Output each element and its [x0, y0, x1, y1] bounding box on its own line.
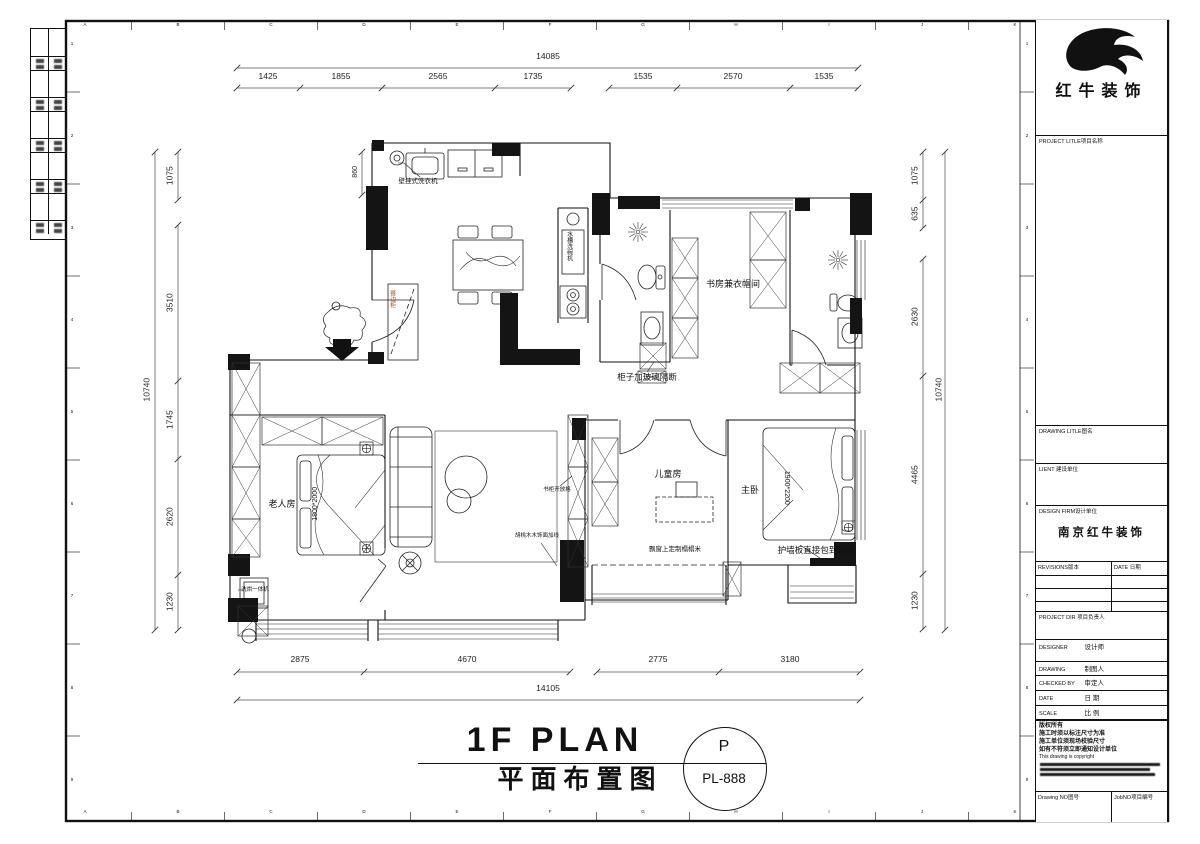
room-label-child: 儿童房 — [650, 470, 686, 480]
checked-by-label-cn: 审定人 — [1085, 680, 1105, 687]
dim-label: 1425 — [244, 72, 292, 81]
dim-left-total: 10740 — [142, 368, 151, 412]
dim-label: 2875 — [276, 655, 324, 664]
grid-letter: C — [265, 23, 277, 28]
grid-letter: J — [916, 810, 928, 815]
checked-by-label-en: CHECKED BY — [1039, 681, 1083, 687]
revision-date-label: DATE 日期 — [1112, 562, 1167, 575]
grid-letter: C — [265, 810, 277, 815]
label-washer-dryer: 洗烘一体机 — [238, 587, 272, 593]
designer-label-en: DESIGNER — [1039, 645, 1083, 651]
revisions-label: REVISIONS版本 — [1036, 562, 1112, 575]
copyright-line: This drawing is copyright — [1039, 754, 1164, 761]
grid-letter: F — [544, 23, 556, 28]
drawing-sheet: 14085 1425 1855 2565 1735 1535 2570 1535… — [0, 0, 1200, 844]
grid-number: 8 — [66, 686, 78, 691]
title-block: 红牛装饰 PROJECT LITLE项目名称 DRAWING LITLE图名 L… — [1035, 20, 1167, 822]
grid-number: 2 — [1021, 134, 1033, 139]
dim-label: 4465 — [910, 457, 919, 493]
walls — [230, 143, 856, 641]
grid-letter: A — [79, 23, 91, 28]
dim-label: 3180 — [766, 655, 814, 664]
grid-number: 6 — [1021, 502, 1033, 507]
grid-number: 3 — [1021, 226, 1033, 231]
project-name-section: PROJECT LITLE项目名称 — [1036, 135, 1167, 425]
grid-letter: G — [637, 810, 649, 815]
dim-label: 1230 — [165, 584, 174, 620]
scale-label-cn: 比 例 — [1085, 710, 1100, 717]
desk-icon — [656, 482, 713, 522]
grid-number: 5 — [1021, 410, 1033, 415]
basin-icon — [641, 312, 663, 345]
grid-letter: E — [451, 23, 463, 28]
bed-master-icon — [763, 428, 855, 540]
leader-lines — [238, 163, 820, 590]
furniture — [238, 148, 862, 643]
project-name-label: PROJECT LITLE项目名称 — [1039, 139, 1103, 145]
toilet-icon — [638, 265, 665, 289]
label-sideboard: 餐边柜 — [388, 290, 395, 308]
drawing-no-label: Drawing NO图号 — [1036, 792, 1112, 822]
design-firm-value: 南京红牛装饰 — [1039, 524, 1164, 540]
revisions-section: REVISIONS版本 DATE 日期 — [1036, 561, 1167, 611]
grid-number: 1 — [1021, 42, 1033, 47]
copyright-line: 施工单位须现场校验尺寸 — [1039, 738, 1164, 746]
grid-letter: K — [1009, 810, 1021, 815]
grid-number: 5 — [66, 410, 78, 415]
grid-letter: H — [730, 810, 742, 815]
sheet-title-en: 1F PLAN — [430, 722, 680, 759]
bed-elder-icon — [297, 455, 385, 555]
label-tatami: 飘窗上定制榻榻米 — [646, 546, 704, 553]
client-section: LIENT 建设单位 — [1036, 463, 1167, 505]
designer-label-cn: 设计师 — [1085, 644, 1105, 651]
copyright-section: 版权所有施工时须以标注尺寸为准施工单位须现场校验尺寸如有不符须立即通知设计单位T… — [1036, 719, 1167, 791]
project-dir-label: PROJECT DIR 项目负责人 — [1039, 615, 1105, 621]
copyright-line: 施工时须以标注尺寸为准 — [1039, 730, 1164, 738]
room-label-elder: 老人房 — [266, 500, 298, 510]
sofa-icon — [390, 427, 432, 547]
grid-letter: J — [916, 23, 928, 28]
sheet-title-cn: 平面布置图 — [485, 765, 675, 794]
grid-letter: I — [823, 23, 835, 28]
sheet-frame — [66, 21, 1168, 821]
grid-number: 4 — [66, 318, 78, 323]
grid-number: 1 — [66, 42, 78, 47]
project-dir-section: PROJECT DIR 项目负责人 — [1036, 611, 1167, 639]
dim-right-total: 10740 — [934, 368, 943, 412]
dim-label: 1535 — [800, 72, 848, 81]
scale-label-en: SCALE — [1039, 711, 1083, 717]
dim-label: 1535 — [619, 72, 667, 81]
grid-letter: G — [637, 23, 649, 28]
numbers-section: Drawing NO图号 JobNO项目编号 — [1036, 791, 1167, 822]
copyright-line: 如有不符须立即通知设计单位 — [1039, 746, 1164, 754]
revision-strip-table — [30, 28, 67, 240]
grid-number: 9 — [1021, 778, 1033, 783]
date-label-en: DATE — [1039, 696, 1083, 702]
label-cabinet-glass: 柜子加玻璃隔断 — [610, 373, 684, 382]
scale-row: SCALE 比 例 — [1036, 705, 1167, 719]
stove-icon — [560, 286, 586, 318]
grid-letter: E — [451, 810, 463, 815]
grid-letter: H — [730, 23, 742, 28]
grid-number: 2 — [66, 134, 78, 139]
label-sink-dishwasher: 水槽洗碗机 — [565, 231, 572, 261]
grid-letter: A — [79, 810, 91, 815]
drawing-title-section: DRAWING LITLE图名 — [1036, 425, 1167, 463]
drawing-title-label: DRAWING LITLE图名 — [1039, 429, 1093, 435]
dim-label: 2630 — [910, 299, 919, 335]
date-label-cn: 日 期 — [1085, 695, 1100, 702]
dining-table-icon — [453, 226, 523, 304]
grid-letter: K — [1009, 23, 1021, 28]
logo-section: 红牛装饰 — [1036, 20, 1167, 135]
designer-row: DESIGNER 设计师 — [1036, 639, 1167, 661]
coffee-table-icon — [445, 456, 487, 513]
doors — [360, 264, 826, 602]
grid-number: 4 — [1021, 318, 1033, 323]
dim-label: 4670 — [443, 655, 491, 664]
label-bed-master-size: 1900*2200 — [782, 463, 790, 513]
dim-label: 1745 — [165, 402, 174, 438]
grid-number: 7 — [1021, 594, 1033, 599]
label-bed-elder-size: 1800*2000 — [312, 479, 320, 529]
grid-letter: B — [172, 810, 184, 815]
dim-label: 1735 — [509, 72, 557, 81]
dim-top-total: 14085 — [520, 52, 576, 61]
dim-label: 1075 — [165, 158, 174, 194]
sheet-code: PL-888 — [697, 772, 751, 787]
copyright-line: 版权所有 — [1039, 722, 1164, 730]
date-row: DATE 日 期 — [1036, 690, 1167, 705]
dim-label: 1230 — [910, 583, 919, 619]
drawing-by-label-cn: 制图人 — [1085, 666, 1105, 673]
dim-label: 1075 — [910, 158, 919, 194]
grid-number: 9 — [66, 778, 78, 783]
label-wall-washer: 壁挂式洗衣机 — [390, 178, 446, 185]
rednbull-logo-icon — [1057, 23, 1161, 75]
grid-number: 6 — [66, 502, 78, 507]
client-label: LIENT 建设单位 — [1039, 467, 1078, 473]
drawing-by-row: DRAWING 制图人 — [1036, 661, 1167, 675]
grid-number: 8 — [1021, 686, 1033, 691]
design-firm-section: DESIGN FIRM设计单位 南京红牛装饰 — [1036, 505, 1167, 561]
design-firm-label: DESIGN FIRM设计单位 — [1039, 509, 1097, 515]
rug — [435, 431, 557, 562]
mop-sink-icon — [406, 148, 444, 179]
dim-label: 2565 — [414, 72, 462, 81]
dim-label: 2775 — [634, 655, 682, 664]
label-bookcase: 书柜开放格 — [542, 487, 572, 493]
label-walnut: 胡桃木木饰面加线 — [513, 533, 561, 539]
dim-label: 2620 — [165, 499, 174, 535]
room-label-master: 主卧 — [738, 486, 762, 496]
sheet-letter: P — [699, 738, 749, 756]
dim-label: 3510 — [165, 285, 174, 321]
dim-bottom-total: 14105 — [520, 684, 576, 693]
drawing-by-label-en: DRAWING — [1039, 667, 1083, 673]
grid-number: 3 — [66, 226, 78, 231]
dim-balcony-height: 860 — [352, 154, 360, 190]
floor-drain-icon — [399, 552, 421, 574]
grid-letter: B — [172, 23, 184, 28]
checked-by-row: CHECKED BY 审定人 — [1036, 675, 1167, 690]
grid-letter: F — [544, 810, 556, 815]
room-label-study: 书房兼衣帽间 — [701, 280, 765, 290]
dim-label: 2570 — [709, 72, 757, 81]
grid-number: 7 — [66, 594, 78, 599]
grid-letter: D — [358, 23, 370, 28]
label-wall-panel: 护墙板直接包到飘窗 — [770, 546, 862, 555]
brand-name: 红牛装饰 — [1039, 77, 1164, 101]
dim-label: 1855 — [317, 72, 365, 81]
dim-label: 635 — [910, 196, 919, 232]
job-no-label: JobNO项目编号 — [1112, 792, 1167, 822]
dimension-lines — [155, 68, 945, 700]
grid-letter: D — [358, 810, 370, 815]
floorplan-drawing — [0, 0, 1200, 844]
grid-letter: I — [823, 810, 835, 815]
